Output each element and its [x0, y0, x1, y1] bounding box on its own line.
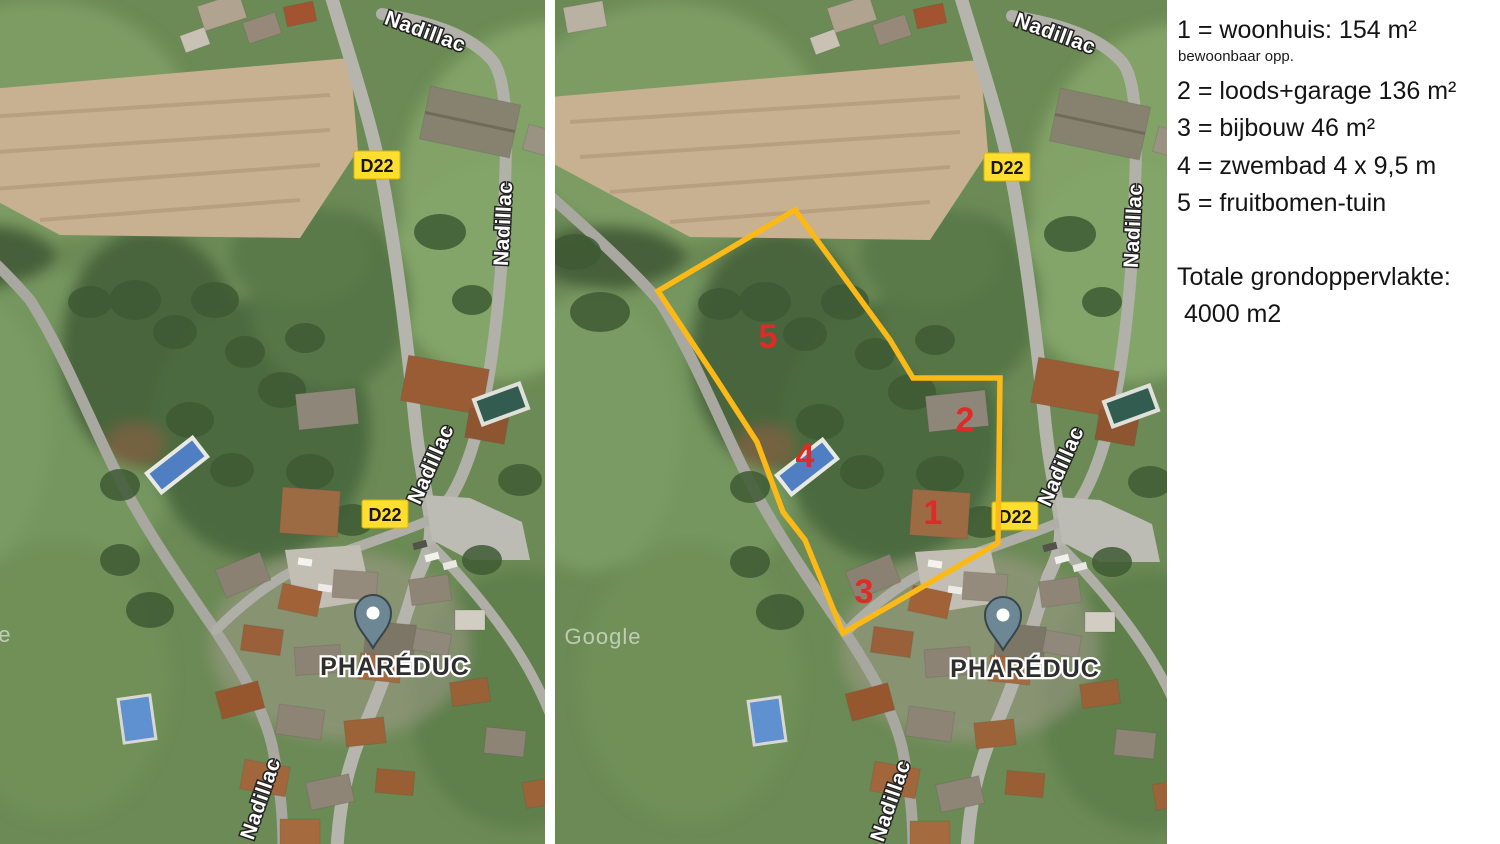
legend-line-1: 1 = woonhuis: 154 m²: [1177, 16, 1496, 46]
legend-line-1-sub: bewoonbaar opp.: [1178, 48, 1496, 65]
map-right-satellite-annotated: 1 2 3 4 5: [555, 0, 1167, 844]
marker-3: 3: [855, 573, 874, 611]
marker-1: 1: [924, 494, 943, 532]
marker-4: 4: [796, 437, 815, 475]
legend-line-2: 2 = loods+garage 136 m²: [1177, 77, 1496, 107]
marker-5: 5: [759, 318, 778, 356]
panel-divider: [545, 0, 555, 844]
map-left-satellite: [0, 0, 545, 844]
legend-line-5: 5 = fruitbomen-tuin: [1177, 189, 1496, 219]
legend-line-4: 4 = zwembad 4 x 9,5 m: [1177, 152, 1496, 182]
legend-panel: 1 = woonhuis: 154 m² bewoonbaar opp. 2 =…: [1167, 0, 1500, 844]
map-left-canvas: [0, 0, 545, 844]
map-right-canvas: 1 2 3 4 5: [555, 0, 1167, 844]
marker-2: 2: [956, 401, 975, 439]
legend-total-label: Totale grondoppervlakte:: [1177, 263, 1496, 292]
legend-total-value: 4000 m2: [1177, 300, 1496, 329]
legend-line-3: 3 = bijbouw 46 m²: [1177, 114, 1496, 144]
